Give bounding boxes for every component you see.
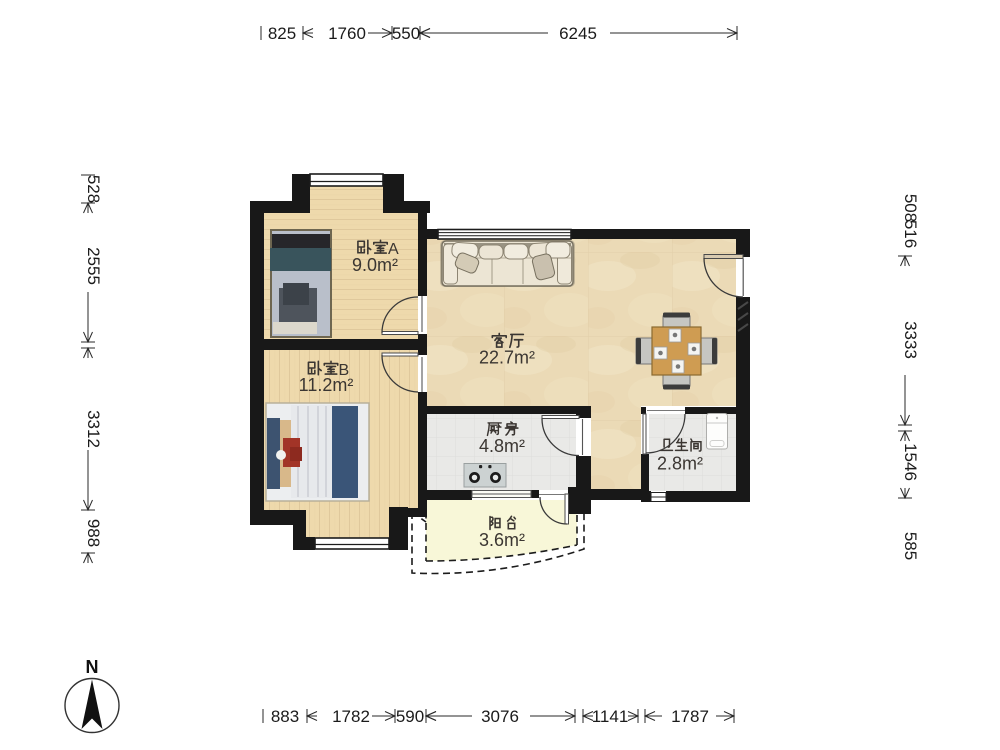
svg-text:N: N — [86, 657, 99, 677]
svg-text:508: 508 — [901, 194, 920, 222]
svg-text:22.7m²: 22.7m² — [479, 348, 535, 368]
svg-text:825: 825 — [268, 24, 296, 43]
svg-text:988: 988 — [84, 519, 103, 547]
svg-text:2555: 2555 — [84, 247, 103, 285]
svg-text:1141: 1141 — [592, 707, 629, 726]
svg-text:9.0m²: 9.0m² — [352, 255, 398, 275]
svg-text:3076: 3076 — [481, 707, 519, 726]
svg-text:6245: 6245 — [559, 24, 597, 43]
svg-text:585: 585 — [901, 532, 920, 560]
svg-text:516: 516 — [901, 220, 920, 248]
svg-text:1760: 1760 — [328, 24, 366, 43]
svg-text:11.2m²: 11.2m² — [299, 375, 354, 395]
svg-text:550: 550 — [392, 24, 420, 43]
svg-text:2.8m²: 2.8m² — [657, 454, 703, 474]
svg-text:883: 883 — [271, 707, 299, 726]
svg-text:590: 590 — [396, 707, 424, 726]
svg-text:3312: 3312 — [84, 410, 103, 448]
svg-text:3.6m²: 3.6m² — [479, 530, 525, 550]
svg-text:528: 528 — [84, 175, 103, 203]
svg-text:3333: 3333 — [901, 321, 920, 359]
svg-text:1546: 1546 — [901, 443, 920, 481]
svg-text:1782: 1782 — [332, 707, 370, 726]
svg-text:1787: 1787 — [671, 707, 709, 726]
svg-text:4.8m²: 4.8m² — [479, 436, 525, 456]
